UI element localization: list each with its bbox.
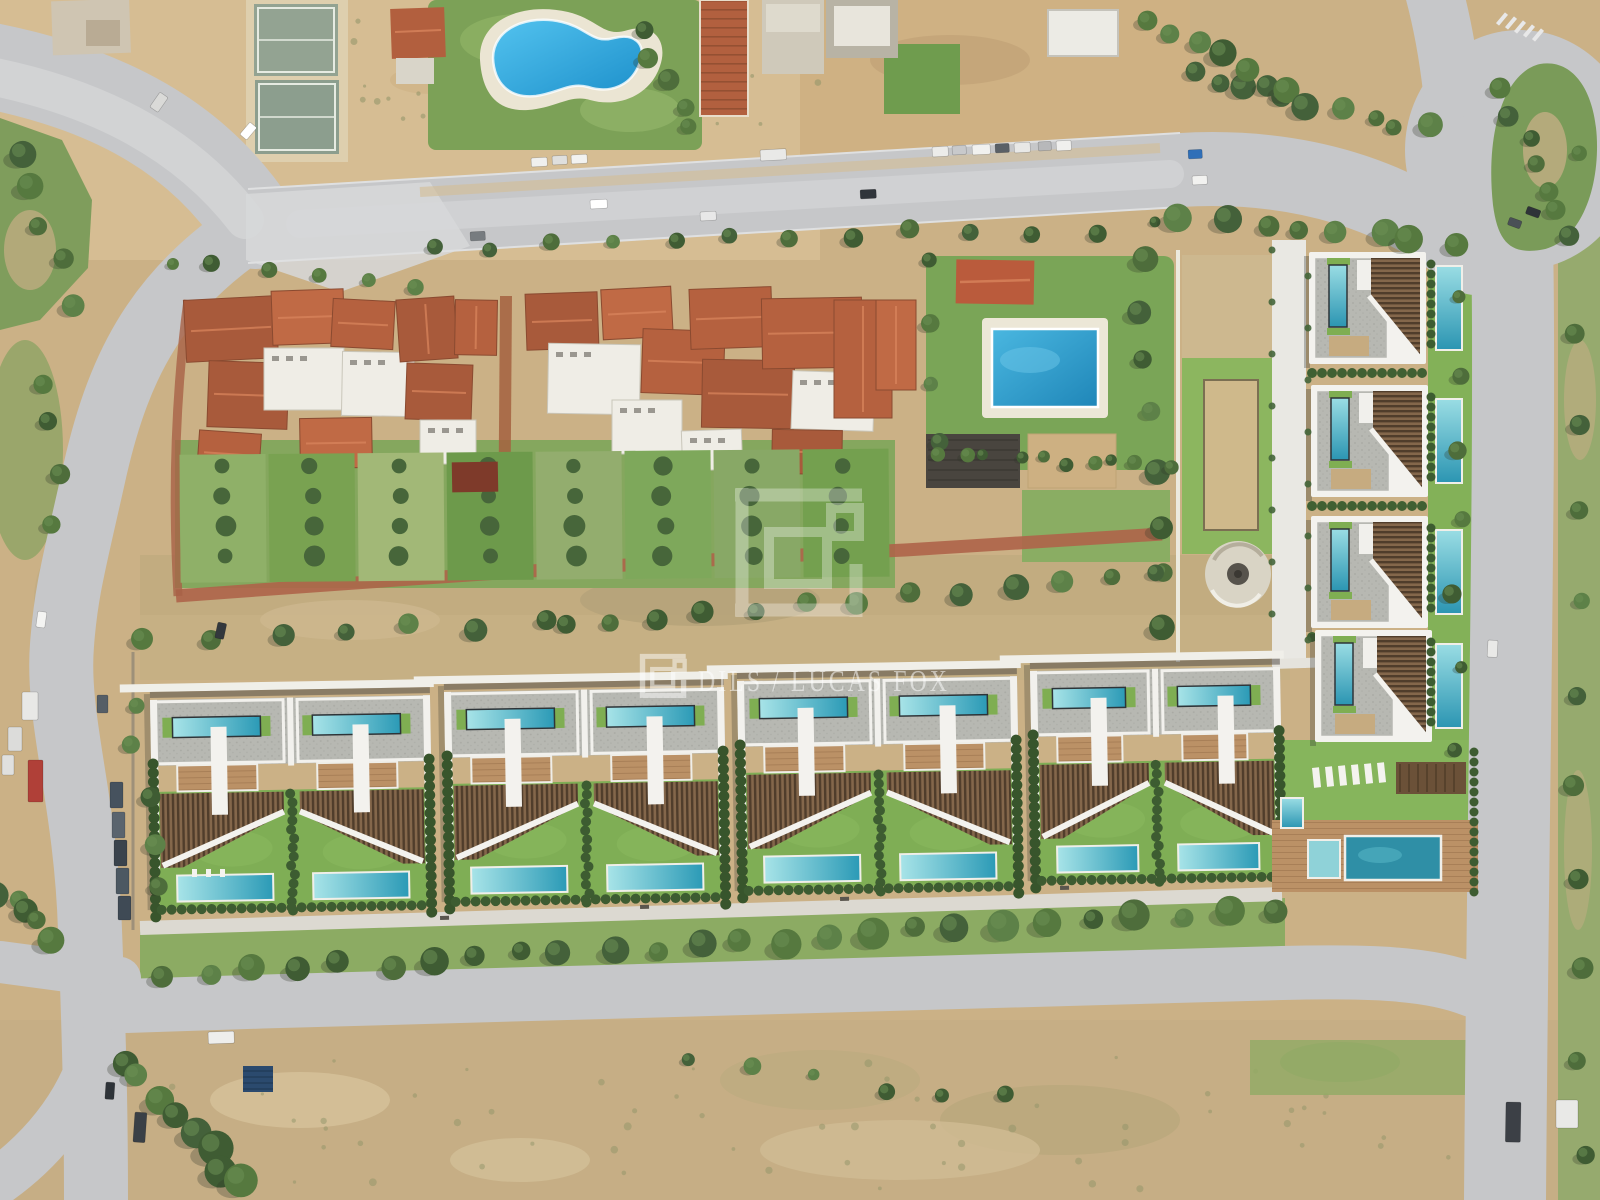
hedge-row: [1417, 368, 1427, 378]
aerial-photo: DILS / LUCAS FOX: [0, 0, 1600, 1200]
hedge-row: [1387, 368, 1397, 378]
rooftop-pool: [1052, 687, 1125, 708]
tree-highlight: [1294, 96, 1308, 110]
garden-tree: [566, 459, 580, 473]
hedge-row: [1327, 368, 1337, 378]
hedge: [1427, 698, 1436, 707]
tree-highlight: [1454, 291, 1461, 298]
green-pad: [889, 696, 899, 716]
tree-highlight: [168, 259, 174, 265]
tree-highlight: [964, 226, 972, 234]
pool-lounger: [220, 869, 225, 877]
garden-tree: [651, 486, 671, 506]
vehicle: [133, 1112, 147, 1143]
rooftop-unit: [442, 428, 449, 433]
lap-pool: [313, 872, 409, 900]
garden-tree: [393, 488, 409, 504]
tree-highlight: [514, 944, 523, 953]
green-pad: [554, 708, 564, 728]
tree-highlight: [328, 952, 339, 963]
driveway-hedge: [1269, 611, 1276, 618]
tree-highlight: [31, 219, 40, 228]
hedge: [1427, 668, 1436, 677]
hedge: [1427, 564, 1436, 573]
construction-slab: [766, 4, 820, 32]
tree-highlight: [1334, 99, 1345, 110]
tree-highlight: [1276, 80, 1289, 93]
pergola: [1396, 762, 1466, 794]
hedge: [1427, 260, 1436, 269]
driveway-hedge: [1305, 273, 1312, 280]
scrub-dot: [674, 1094, 679, 1099]
party-wall: [287, 698, 294, 766]
dirt-patch: [210, 1072, 390, 1128]
roof-terrace: [1331, 469, 1371, 489]
tree-highlight: [932, 449, 939, 456]
tree-highlight: [547, 943, 560, 956]
parked-vehicle: [531, 157, 547, 167]
rooftop-unit: [814, 380, 821, 385]
scrub-dot: [632, 1108, 637, 1113]
tree-highlight: [1147, 462, 1160, 475]
tree-highlight: [1454, 369, 1463, 378]
rooftop-unit: [350, 360, 357, 365]
tree-highlight: [1149, 566, 1157, 574]
hedge: [1470, 808, 1479, 817]
parked-vehicle: [112, 812, 125, 838]
driveway-hedge: [1269, 507, 1276, 514]
vehicle: [700, 211, 716, 221]
scrub-dot: [1323, 1111, 1327, 1115]
white-building: [1048, 10, 1118, 56]
vehicle: [105, 1082, 115, 1100]
scrub-dot: [369, 1178, 377, 1186]
barn-roof: [452, 462, 499, 493]
hedge: [1470, 868, 1479, 877]
tree-highlight: [20, 176, 33, 189]
rooftop-unit: [300, 356, 307, 361]
watermark-text: DILS / LUCAS FOX: [698, 663, 950, 698]
scrub-dot: [1205, 1091, 1210, 1096]
scrub-dot: [1122, 1124, 1128, 1130]
garden-tree: [835, 458, 850, 473]
tree-highlight: [339, 625, 347, 633]
tree-highlight: [1456, 662, 1462, 668]
hedge-row: [1347, 501, 1357, 511]
vehicle: [1192, 175, 1207, 185]
scrub-dot: [864, 1059, 872, 1067]
tree-highlight: [923, 316, 932, 325]
rooftop-unit: [584, 352, 591, 357]
tree-highlight: [880, 1085, 888, 1093]
scrub-dot: [1284, 1120, 1291, 1127]
tree-highlight: [1574, 959, 1585, 970]
tree-highlight: [1259, 77, 1270, 88]
scrub-dot: [716, 122, 719, 125]
lap-pool: [764, 855, 860, 883]
tree-highlight: [1129, 456, 1136, 463]
tree-highlight: [1573, 147, 1581, 155]
hedge: [1427, 443, 1436, 452]
vehicle: [36, 611, 47, 628]
hedge: [1470, 838, 1479, 847]
driveway-hedge: [1305, 637, 1312, 644]
tree-highlight: [466, 621, 478, 633]
solar-carport: [243, 1066, 273, 1092]
parked-vehicle: [118, 896, 131, 920]
tree-highlight: [1370, 112, 1378, 120]
tree-highlight: [990, 913, 1006, 929]
rooftop-unit: [286, 356, 293, 361]
rooftop-unit: [378, 360, 385, 365]
tree-highlight: [12, 144, 26, 158]
tree-highlight: [1570, 689, 1579, 698]
scrub-dot: [1075, 1158, 1082, 1165]
tree-highlight: [1212, 42, 1226, 56]
hedge: [1427, 718, 1436, 727]
kids-pool: [1308, 840, 1340, 878]
hedge: [1470, 848, 1479, 857]
tree-highlight: [682, 120, 690, 128]
tree-highlight: [679, 101, 688, 110]
rooftop-unit: [704, 438, 711, 443]
hedge-row: [1307, 368, 1317, 378]
stair-core: [210, 727, 228, 815]
tree-highlight: [1135, 249, 1148, 262]
vehicle: [1505, 1102, 1521, 1142]
scrub-dot: [1378, 1143, 1384, 1149]
scrub-dot: [1446, 1155, 1451, 1160]
road: [1432, 0, 1452, 90]
tree-highlight: [1572, 417, 1582, 427]
tree-highlight: [1565, 777, 1576, 788]
green-pad: [1329, 391, 1352, 398]
tree-highlight: [605, 939, 619, 953]
tree-highlight: [1166, 206, 1180, 220]
driveway-hedge: [1305, 481, 1312, 488]
scrub-dot: [624, 1122, 632, 1130]
hedge: [1427, 473, 1436, 482]
scrub-dot: [732, 1147, 736, 1151]
tree-highlight: [1018, 453, 1024, 459]
scrub-dot: [169, 1084, 175, 1090]
garden-tree: [218, 549, 233, 564]
hedge: [1427, 393, 1436, 402]
hedge-row: [1317, 368, 1327, 378]
hedge: [1427, 320, 1436, 329]
tree-highlight: [1061, 459, 1068, 466]
hedge: [1427, 604, 1436, 613]
lap-pool: [900, 853, 996, 881]
scrub-dot: [942, 1161, 946, 1165]
tree-highlight: [208, 1159, 224, 1175]
vehicle: [1556, 1100, 1578, 1128]
pool-lounger: [206, 869, 211, 877]
garden-tree: [566, 546, 587, 567]
scrub-dot: [261, 1092, 264, 1095]
garden-tree: [653, 456, 672, 475]
tree-highlight: [1162, 26, 1172, 36]
tree-highlight: [799, 594, 809, 604]
scrub-dot: [401, 116, 405, 120]
rooftop-pool: [1335, 643, 1353, 705]
tree-highlight: [203, 632, 213, 642]
tree-highlight: [846, 230, 856, 240]
tree-highlight: [124, 737, 133, 746]
parked-vehicle: [110, 782, 123, 808]
scrub-dot: [759, 122, 763, 126]
scrub-dot: [1302, 1106, 1307, 1111]
dev-dirt: [1182, 255, 1274, 360]
parked-vehicle: [22, 692, 38, 720]
rooftop-pool: [1331, 398, 1349, 460]
driveway-hedge: [1269, 455, 1276, 462]
hedge: [1470, 788, 1479, 797]
hedge: [1427, 584, 1436, 593]
tree-highlight: [999, 1087, 1007, 1095]
parked-vehicle: [995, 143, 1009, 153]
scrub-dot: [815, 79, 822, 86]
driveway-hedge: [1305, 585, 1312, 592]
hedge-row: [1377, 501, 1387, 511]
scrub-dot: [1008, 1125, 1016, 1133]
vehicle: [208, 1031, 234, 1044]
tree-highlight: [313, 269, 320, 276]
garden-tree: [480, 516, 500, 536]
tree-highlight: [1006, 577, 1019, 590]
tree-highlight: [1326, 223, 1337, 234]
parked-vehicle: [1014, 142, 1031, 153]
scrub-dot: [321, 1145, 326, 1150]
scrub-dot: [358, 1140, 364, 1146]
green-pad: [162, 718, 172, 738]
tree-highlight: [1238, 60, 1250, 72]
hedge: [1470, 758, 1479, 767]
hedge: [1427, 290, 1436, 299]
rooftop-unit: [570, 352, 577, 357]
tree-highlight: [923, 254, 931, 262]
green-pad: [1125, 687, 1135, 707]
tree-highlight: [1025, 228, 1033, 236]
road: [1505, 242, 1513, 1200]
scrub-dot: [622, 1171, 627, 1176]
villa-block: [1000, 651, 1288, 894]
tree-highlight: [148, 1089, 162, 1103]
garden-tree: [483, 549, 498, 564]
driveway-hedge: [1269, 351, 1276, 358]
stair-core: [797, 708, 815, 796]
dirt-patch: [760, 1120, 1040, 1180]
vehicle: [470, 231, 485, 241]
tree-highlight: [1191, 33, 1202, 44]
parked-vehicle: [932, 146, 949, 157]
scrub-dot: [350, 38, 357, 45]
garden-tree: [392, 518, 408, 534]
tree-highlight: [774, 932, 789, 947]
parked-vehicle: [760, 149, 787, 161]
scrub-dot: [699, 1113, 704, 1118]
lap-pool: [1436, 399, 1462, 483]
tree-highlight: [933, 435, 942, 444]
scrub-dot: [1289, 1107, 1295, 1113]
tree-highlight: [745, 1059, 754, 1068]
bench: [440, 916, 449, 920]
garden-tree: [834, 548, 850, 564]
scrub-dot: [884, 1076, 889, 1081]
hedge-row: [1337, 501, 1347, 511]
tree-highlight: [730, 931, 742, 943]
scrub-dot: [324, 1126, 328, 1130]
hedge: [1470, 878, 1479, 887]
tree-highlight: [1387, 121, 1395, 129]
tree-highlight: [1135, 352, 1144, 361]
green-pad: [596, 707, 606, 727]
lap-pool: [1436, 266, 1462, 350]
hedge: [1470, 888, 1479, 897]
tree-highlight: [1039, 452, 1045, 458]
tree-highlight: [151, 879, 160, 888]
lap-pool: [607, 864, 703, 892]
green-pad: [456, 710, 466, 730]
stair-core: [504, 719, 522, 807]
parked-vehicle: [116, 868, 129, 894]
parked-vehicle: [8, 727, 22, 751]
tree-highlight: [1105, 570, 1113, 578]
green-pad: [1327, 258, 1350, 265]
hedge-row: [1357, 501, 1367, 511]
parked-vehicle: [28, 760, 43, 802]
tree-highlight: [1188, 64, 1198, 74]
villa: [1310, 630, 1432, 746]
tree-highlight: [384, 958, 396, 970]
tree-highlight: [64, 297, 75, 308]
green-pad: [749, 699, 759, 719]
tree-highlight: [962, 449, 969, 456]
aerial-photo-stage: DILS / LUCAS FOX: [0, 0, 1600, 1200]
stair-core: [1363, 638, 1379, 668]
scrub-dot: [421, 114, 426, 119]
garden-tree: [744, 458, 759, 473]
water-shimmer: [1358, 847, 1402, 863]
tree-highlight: [907, 919, 917, 929]
garden-tree: [657, 517, 674, 534]
rooftop-unit: [556, 352, 563, 357]
villa: [1304, 252, 1426, 368]
rooftop-unit: [690, 438, 697, 443]
hedge: [1470, 858, 1479, 867]
scrub-dot: [465, 1068, 468, 1071]
tree-highlight: [400, 615, 410, 625]
lap-pool: [1057, 845, 1138, 872]
tree-highlight: [263, 263, 271, 271]
parked-vehicle: [1038, 141, 1051, 151]
tree-highlight: [723, 229, 731, 237]
stair-core: [1357, 260, 1373, 290]
garden-tree: [215, 459, 230, 474]
tree-highlight: [603, 616, 612, 625]
tree-highlight: [1492, 80, 1503, 91]
roof-ridge: [476, 306, 477, 349]
tree-highlight: [409, 281, 417, 289]
scrub-dot: [479, 1164, 485, 1170]
rooftop-unit: [272, 356, 279, 361]
green-pad: [1333, 636, 1356, 643]
stair-core: [1090, 698, 1108, 786]
tree-highlight: [978, 450, 984, 456]
scrub-dot: [1122, 1139, 1129, 1146]
hedge-row: [1367, 501, 1377, 511]
hedge: [1427, 638, 1436, 647]
hedge: [1427, 544, 1436, 553]
hedge: [1427, 413, 1436, 422]
stair-core: [939, 705, 957, 793]
garden-tree: [389, 546, 409, 566]
garden-tree: [305, 488, 321, 504]
vehicle: [590, 199, 607, 209]
tree-highlight: [1213, 76, 1222, 85]
green-pad: [302, 715, 312, 735]
hedge: [1470, 768, 1479, 777]
rooftop-unit: [648, 408, 655, 413]
tree-highlight: [41, 414, 50, 423]
tree-highlight: [165, 1105, 178, 1118]
tree-highlight: [1420, 115, 1432, 127]
tree-highlight: [1575, 594, 1583, 602]
tree-highlight: [1447, 235, 1459, 247]
tree-highlight: [1525, 132, 1533, 140]
tree-highlight: [1547, 202, 1557, 212]
roof-terrace: [1057, 735, 1122, 762]
tree-highlight: [860, 921, 876, 937]
tree-highlight: [936, 1090, 943, 1097]
tree-highlight: [184, 1121, 199, 1136]
driveway-hedge: [1269, 247, 1276, 254]
green-pad: [847, 697, 857, 717]
villa-block: [414, 671, 732, 915]
tree-highlight: [1578, 1148, 1587, 1157]
scrub-dot: [1089, 1180, 1096, 1187]
green-pad: [1333, 706, 1356, 713]
scrub-dot: [851, 1123, 859, 1131]
hedge: [1427, 310, 1436, 319]
tree-highlight: [1176, 910, 1185, 919]
parked-vehicle: [972, 144, 990, 155]
tree-highlight: [660, 71, 671, 82]
hedge: [1427, 708, 1436, 717]
parked-vehicle: [952, 145, 966, 155]
vehicle: [1487, 640, 1498, 658]
tree-highlight: [608, 236, 615, 243]
tree-highlight: [1261, 218, 1272, 229]
tree-highlight: [925, 378, 932, 385]
hedge-row: [1397, 368, 1407, 378]
tree-highlight: [1152, 617, 1165, 630]
hedge: [1427, 524, 1436, 533]
hedge: [1427, 463, 1436, 472]
scrub-dot: [355, 19, 360, 24]
driveway-hedge: [1305, 429, 1312, 436]
hedge: [1427, 330, 1436, 339]
tree-highlight: [1500, 108, 1510, 118]
driveway-hedge: [1305, 533, 1312, 540]
driveway-hedge: [1269, 299, 1276, 306]
tree-highlight: [1397, 228, 1411, 242]
verge-dirt: [1564, 340, 1596, 460]
scrub-dot: [845, 1160, 851, 1166]
scrub-dot: [360, 97, 366, 103]
tree-highlight: [952, 586, 964, 598]
hedge: [1427, 453, 1436, 462]
